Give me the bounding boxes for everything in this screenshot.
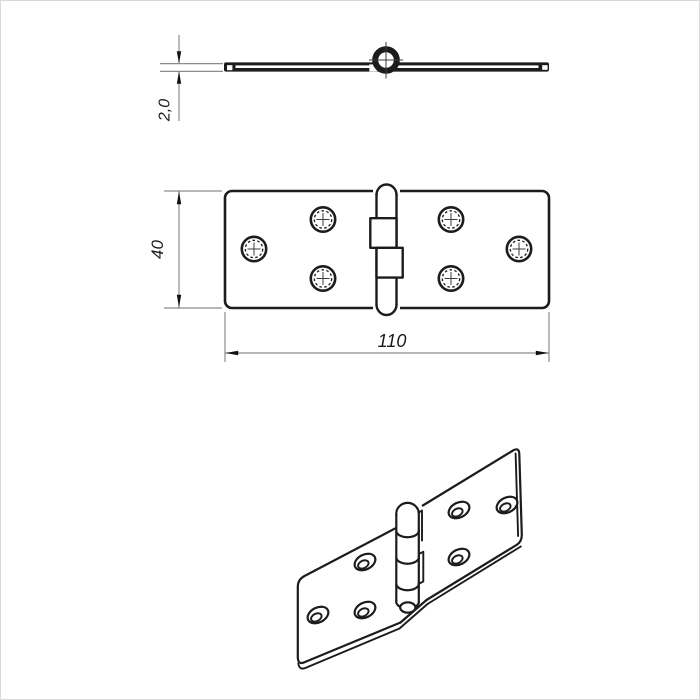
screw-hole [242,237,266,261]
width-arrow-left [225,351,238,355]
side-view: 2,0 [157,35,550,122]
drawing-canvas: 2,0 40 110 [0,0,700,700]
height-arrow-up [177,191,181,204]
hinge-technical-drawing: 2,0 40 110 [1,1,699,699]
iso-barrel-top-cap [396,503,419,515]
plan-view: 40 110 [148,185,549,363]
iso-knuckle-joint-arc-1 [396,530,419,537]
screw-hole [507,237,531,261]
thickness-arrow-down [177,51,181,63]
dim-height-label: 40 [148,240,167,259]
screw-hole [439,207,463,231]
iso-left-leaf [298,529,401,664]
dim-thickness-label: 2,0 [157,99,174,122]
screw-hole [439,266,463,290]
leaf-edge-end-left [227,65,232,70]
height-arrow-down [177,295,181,308]
knuckle-sleeve-left [370,218,396,248]
isometric-view [298,449,522,668]
thickness-arrow-up [177,71,181,83]
iso-pin-end [400,602,415,612]
screw-hole [311,266,335,290]
dim-width-label: 110 [378,331,407,351]
width-arrow-right [536,351,549,355]
iso-knuckle-joint-arc-2 [396,556,419,563]
iso-knuckle-joint-arc-3 [396,583,419,590]
leaf-edge-end-right [542,65,547,70]
screw-hole [311,207,335,231]
knuckle-sleeve-right [377,248,403,278]
